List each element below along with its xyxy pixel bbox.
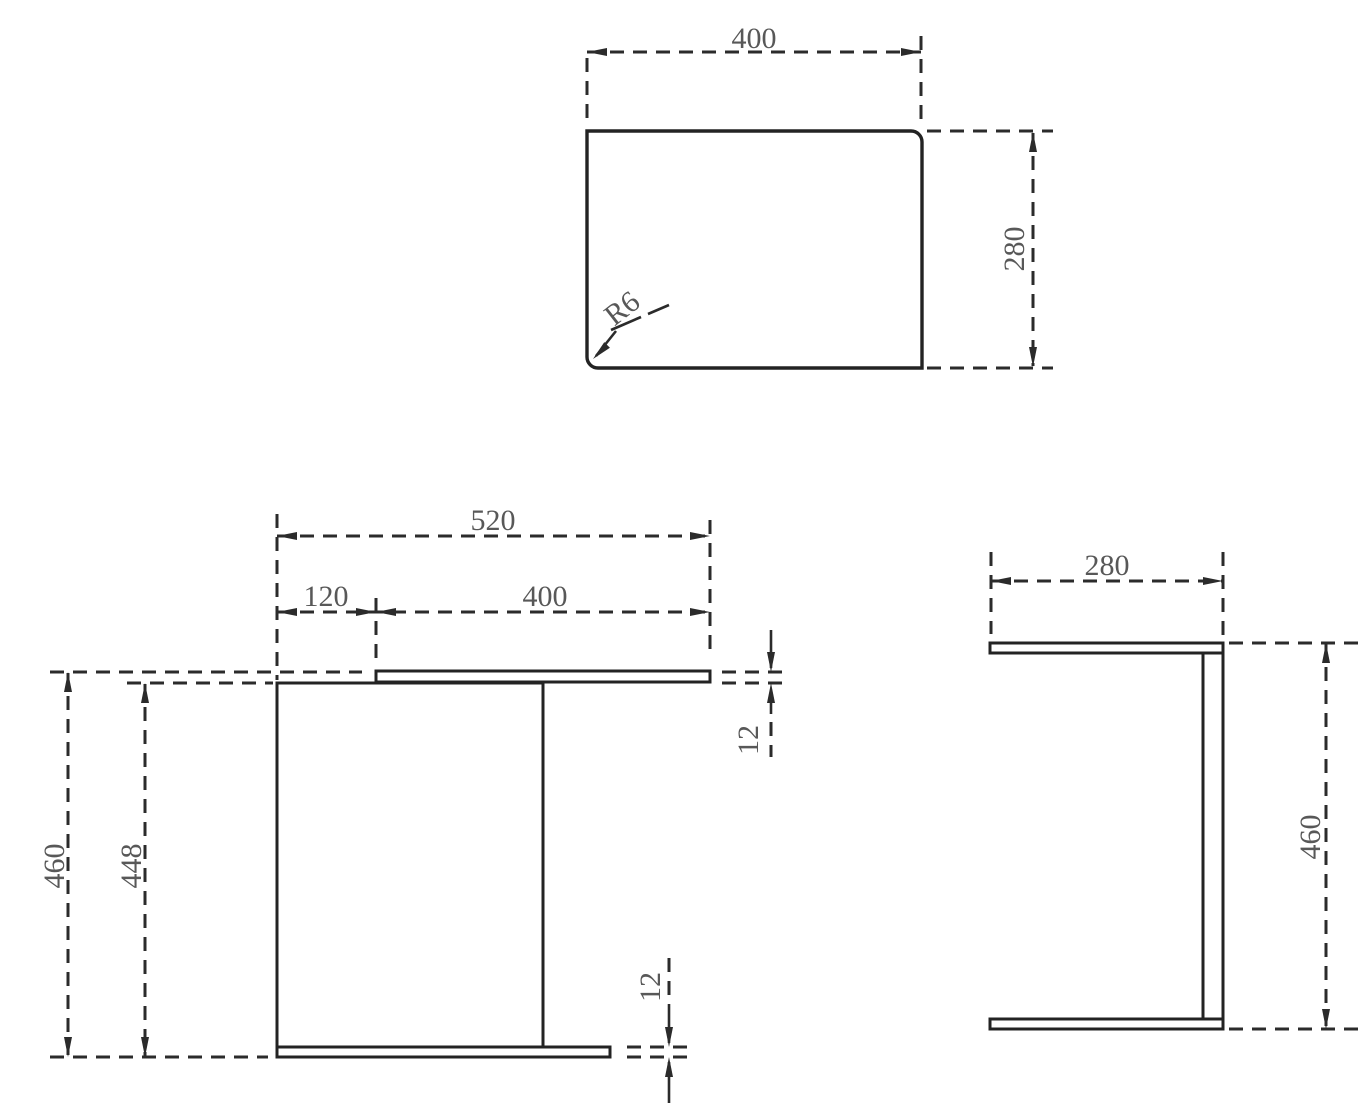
front-view-support-panel <box>277 683 543 1047</box>
front-view-bottom-thickness-dimension: 12 <box>627 958 687 1103</box>
side-view-depth-dimension: 280 <box>991 549 1223 637</box>
dimension-label-overall-width: 520 <box>471 504 516 537</box>
dimension-label-depth: 280 <box>998 227 1031 272</box>
top-view-width-dimension: 400 <box>587 22 921 122</box>
top-view-depth-dimension: 280 <box>927 131 1053 368</box>
arrowhead-up <box>1029 132 1037 152</box>
arrowhead-left <box>991 577 1011 585</box>
dimension-label-depth: 280 <box>1085 549 1130 582</box>
arrowhead-right <box>1203 577 1223 585</box>
dimension-label-top-thickness: 12 <box>732 725 765 755</box>
dimension-label-height: 460 <box>1294 815 1327 860</box>
arrowhead-mid-left <box>376 608 396 616</box>
leader-line <box>596 331 616 356</box>
label-underline-dash <box>648 305 669 314</box>
arrowhead-mid-right <box>356 608 376 616</box>
dimension-label-bottom-thickness: 12 <box>634 972 667 1002</box>
side-view-support-panel <box>1203 653 1223 1019</box>
side-view: 280 460 <box>990 549 1360 1029</box>
front-view-panel-height-dimension: 448 <box>115 683 149 1057</box>
arrowhead-left <box>277 532 297 540</box>
arrowhead-up <box>64 672 72 692</box>
arrowhead-up <box>141 683 149 703</box>
arrowhead-up <box>767 683 775 703</box>
dimension-label-offset: 120 <box>304 580 349 613</box>
front-view-top-thickness-dimension: 12 <box>722 630 790 757</box>
technical-drawing-page: 400 280 R6 <box>0 0 1368 1119</box>
side-view-top-board <box>990 643 1223 653</box>
arrowhead-right <box>690 532 710 540</box>
side-view-bottom-board <box>990 1019 1223 1029</box>
side-view-height-dimension: 460 <box>1229 643 1360 1029</box>
top-view-outline <box>587 131 922 368</box>
dimension-label-top-width: 400 <box>523 580 568 613</box>
arrowhead-down <box>1029 347 1037 367</box>
arrowhead-right <box>901 48 921 56</box>
arrowhead-down <box>767 652 775 672</box>
arrowhead-down <box>665 1027 673 1047</box>
front-view-top-board <box>376 671 710 682</box>
front-view-overall-height-dimension: 460 <box>38 672 72 1057</box>
arrowhead-down <box>141 1037 149 1057</box>
corner-radius-callout: R6 <box>593 285 669 359</box>
three-view-drawing: 400 280 R6 <box>0 0 1368 1119</box>
dimension-label-panel-height: 448 <box>115 844 148 889</box>
arrowhead-left <box>277 608 297 616</box>
arrowhead-right <box>690 608 710 616</box>
arrowhead-up <box>1322 643 1330 663</box>
dimension-label-overall-height: 460 <box>38 844 71 889</box>
top-view: 400 280 R6 <box>587 22 1053 368</box>
front-view: 520 120 400 460 448 <box>38 504 790 1103</box>
front-view-bottom-board <box>277 1047 610 1057</box>
front-view-overall-width-dimension: 520 <box>277 504 710 540</box>
arrowhead-down <box>64 1037 72 1057</box>
arrowhead-left <box>587 48 607 56</box>
arrowhead-down <box>1322 1009 1330 1029</box>
front-view-offset-and-top-width-dimension: 120 400 <box>277 580 710 616</box>
arrowhead-up <box>665 1057 673 1077</box>
dimension-label-radius: R6 <box>598 285 646 333</box>
dimension-label-width: 400 <box>732 22 777 55</box>
